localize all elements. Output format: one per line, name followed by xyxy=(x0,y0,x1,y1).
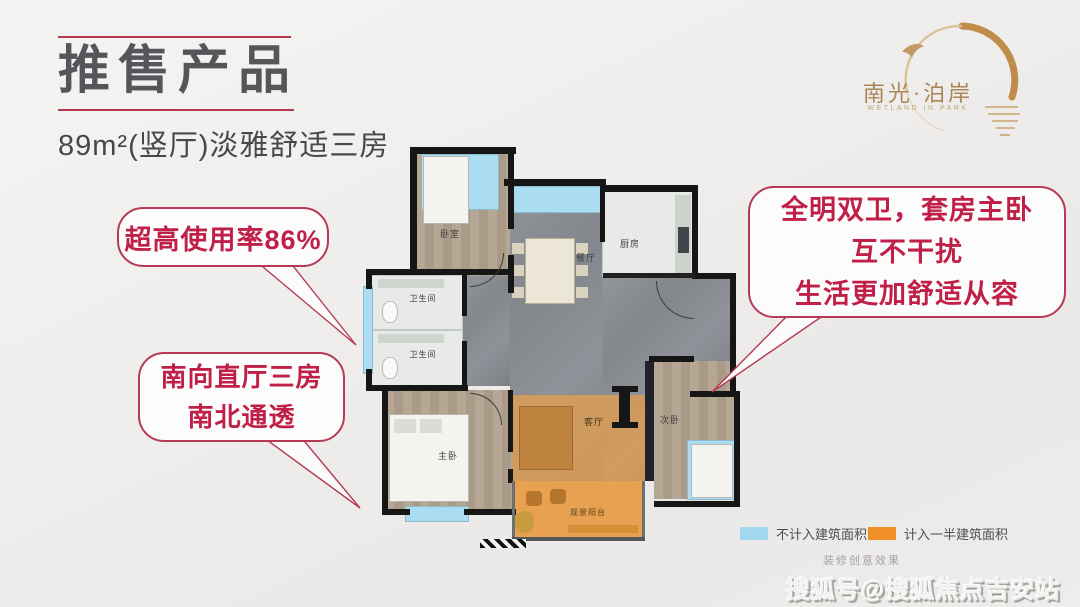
callout-line: 超高使用率86% xyxy=(124,218,321,257)
balcony-rail xyxy=(642,481,645,539)
title-rule-bottom xyxy=(58,109,294,111)
room-label-bedroom: 卧室 xyxy=(430,227,470,240)
wall-column xyxy=(612,422,638,428)
callout-line: 全明双卫，套房主卧 xyxy=(781,189,1033,231)
kitchen-appliance xyxy=(678,227,689,253)
page-subtitle: 89m²(竖厅)淡雅舒适三房 xyxy=(58,122,389,164)
legend-label: 不计入建筑面积 xyxy=(776,524,867,543)
page: 推售产品 89m²(竖厅)淡雅舒适三房 南光·泊岸 WETLAND IN PAR… xyxy=(0,0,1080,607)
disclaimer-note: 装修创意效果 xyxy=(823,552,901,568)
wall-segment xyxy=(654,501,740,507)
wall-segment xyxy=(366,269,372,289)
callout-south-facing: 南向直厅三房 南北通透 xyxy=(138,352,345,442)
callout-double-bathroom: 全明双卫，套房主卧 互不干扰 生活更加舒适从容 xyxy=(748,186,1066,318)
pillow xyxy=(420,419,442,433)
wall-segment xyxy=(730,273,736,396)
balcony-planter xyxy=(568,525,638,533)
wall-segment xyxy=(692,185,698,279)
window-master-south xyxy=(406,507,468,521)
balcony-rail xyxy=(512,481,515,539)
room-label-dining: 餐厅 xyxy=(566,251,606,264)
callout-line: 南北通透 xyxy=(187,397,295,437)
wall-segment xyxy=(382,385,388,515)
wall-segment xyxy=(382,509,410,515)
wall-segment xyxy=(690,391,740,397)
dining-chair xyxy=(576,265,588,276)
scale-marker xyxy=(480,539,526,548)
wall-segment xyxy=(410,147,516,154)
callout-line: 互不干扰 xyxy=(851,231,963,273)
wall-column xyxy=(619,392,630,422)
room-label-bedroom-east: 次卧 xyxy=(650,413,690,426)
room-label-kitchen: 厨房 xyxy=(610,237,650,250)
wall-segment xyxy=(508,390,513,452)
balcony-rail xyxy=(512,537,645,541)
dining-table xyxy=(526,239,574,303)
dining-chair xyxy=(576,287,588,298)
wall-segment xyxy=(600,192,605,242)
balcony-chair xyxy=(550,489,566,504)
wall-segment xyxy=(508,151,514,229)
wall-segment xyxy=(734,391,740,507)
bed-north xyxy=(424,157,468,223)
floor-plan: 卧室 餐厅 厨房 卫生间 卫生间 主卧 客厅 次卧 观景阳台 xyxy=(358,143,744,547)
room-label-master: 主卧 xyxy=(428,449,468,462)
callout-line: 生活更加舒适从容 xyxy=(795,273,1019,315)
watermark: 搜狐号@搜狐焦点吉安站 xyxy=(786,570,1060,605)
balcony-plant xyxy=(514,511,534,533)
sofa xyxy=(520,407,572,469)
wall-segment xyxy=(462,341,467,389)
corridor-floor xyxy=(462,276,510,386)
legend-item-half-area: 计入一半建筑面积 xyxy=(868,524,1008,543)
pillow xyxy=(394,419,416,433)
legend-swatch-orange xyxy=(868,527,896,540)
wall-segment xyxy=(464,509,516,515)
wall-segment xyxy=(508,255,514,293)
room-label-living: 客厅 xyxy=(574,415,614,428)
room-label-balcony: 观景阳台 xyxy=(558,507,618,518)
wall-segment xyxy=(462,274,467,316)
legend-item-excluded-area: 不计入建筑面积 xyxy=(740,524,867,543)
toilet xyxy=(382,301,398,323)
legend-label: 计入一半建筑面积 xyxy=(904,524,1008,543)
window-bathrooms-west xyxy=(364,287,372,373)
window-dining-north xyxy=(512,187,600,212)
callout-line: 南向直厅三房 xyxy=(160,357,322,397)
title-rule-top xyxy=(58,36,291,38)
bathroom-sink xyxy=(378,279,444,288)
brand-name: 南光·泊岸 xyxy=(852,76,984,108)
page-title: 推售产品 xyxy=(58,40,298,102)
balcony-chair xyxy=(526,491,542,506)
brand-name-english: WETLAND IN PARK xyxy=(852,105,984,112)
wall-segment xyxy=(504,179,606,186)
legend-swatch-blue xyxy=(740,527,768,540)
wall-segment xyxy=(603,273,695,278)
wall-segment xyxy=(410,147,417,273)
room-label-bathroom-2: 卫生间 xyxy=(398,349,448,360)
toilet xyxy=(382,357,398,379)
bathroom-sink xyxy=(378,334,444,343)
bed-east xyxy=(692,445,732,497)
wall-segment xyxy=(600,185,698,192)
callout-usage-rate: 超高使用率86% xyxy=(117,207,329,267)
room-label-bathroom-1: 卫生间 xyxy=(398,293,448,304)
wall-segment xyxy=(649,356,694,362)
dining-chair xyxy=(512,243,524,254)
